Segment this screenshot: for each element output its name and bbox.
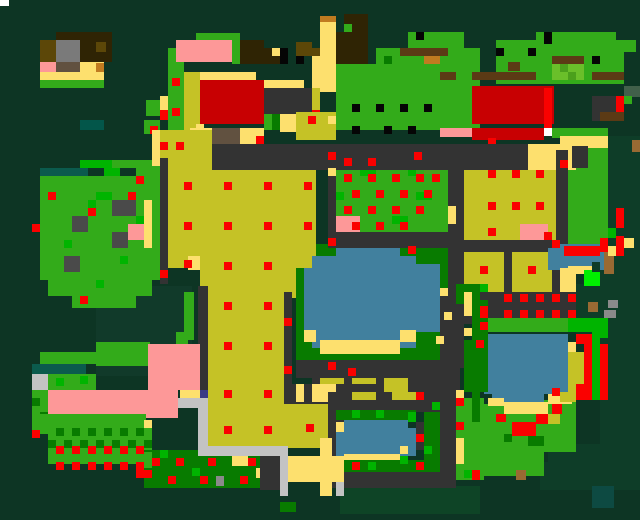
game-map xyxy=(0,0,640,520)
game-map-canvas[interactable] xyxy=(0,0,640,520)
